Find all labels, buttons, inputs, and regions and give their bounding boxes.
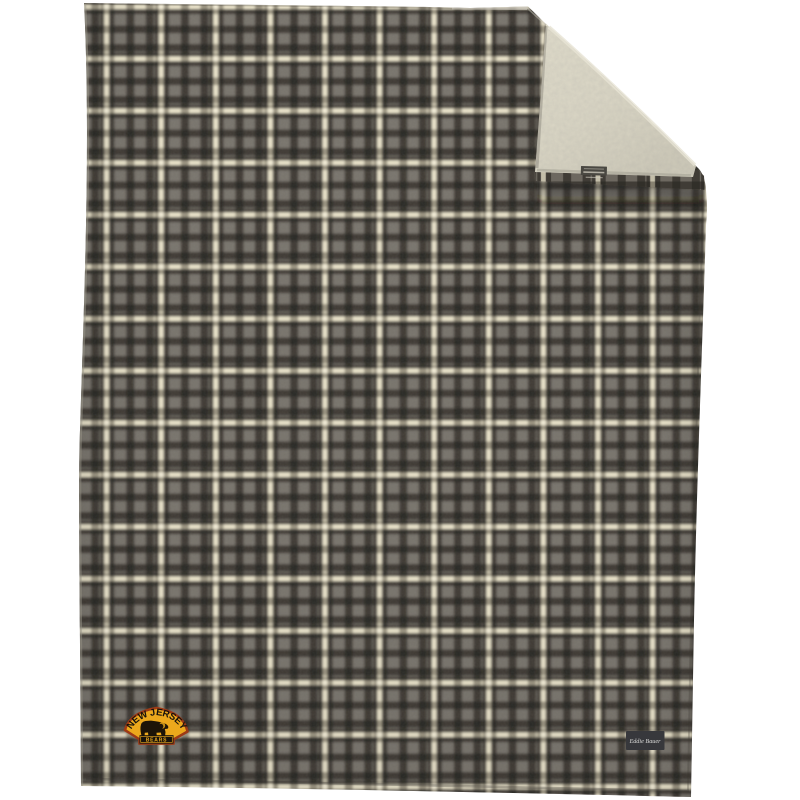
- svg-text:Eddie Bauer: Eddie Bauer: [628, 738, 661, 745]
- svg-text:BEARS: BEARS: [146, 738, 168, 744]
